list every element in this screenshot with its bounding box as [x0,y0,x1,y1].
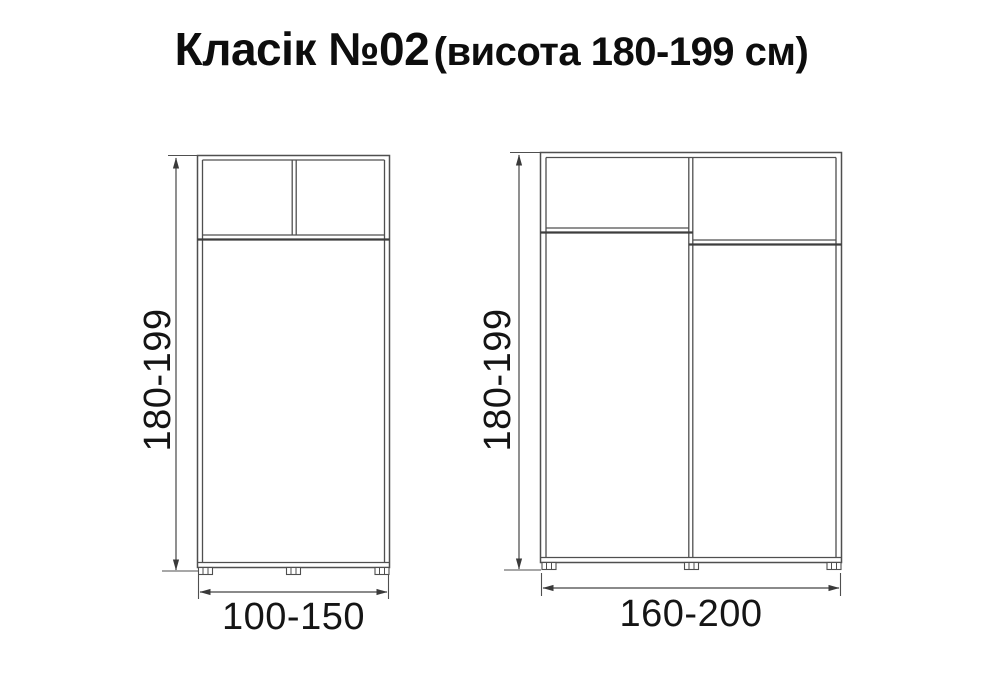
width-dimension-small: 100-150 [199,575,389,638]
foot-icon [827,563,841,570]
wardrobe-small: 180-199 100-150 [137,156,390,639]
width-dimension-large: 160-200 [542,573,841,635]
diagram-canvas: 180-199 100-150 [0,0,983,700]
foot-icon [375,568,389,575]
foot-icon [685,563,699,570]
foot-icon [199,568,213,575]
wardrobe-large-body-outline [541,153,842,563]
foot-icon [542,563,556,570]
width-label-large: 160-200 [620,593,763,635]
wardrobe-large: 180-199 160-200 [477,153,842,636]
foot-icon [287,568,301,575]
width-label-small: 100-150 [222,596,365,638]
height-dimension-small: 180-199 [137,156,198,572]
height-label-small: 180-199 [137,309,179,452]
wardrobe-small-body-outline [198,156,390,568]
height-dimension-large: 180-199 [477,153,541,571]
height-label-large: 180-199 [477,309,519,452]
